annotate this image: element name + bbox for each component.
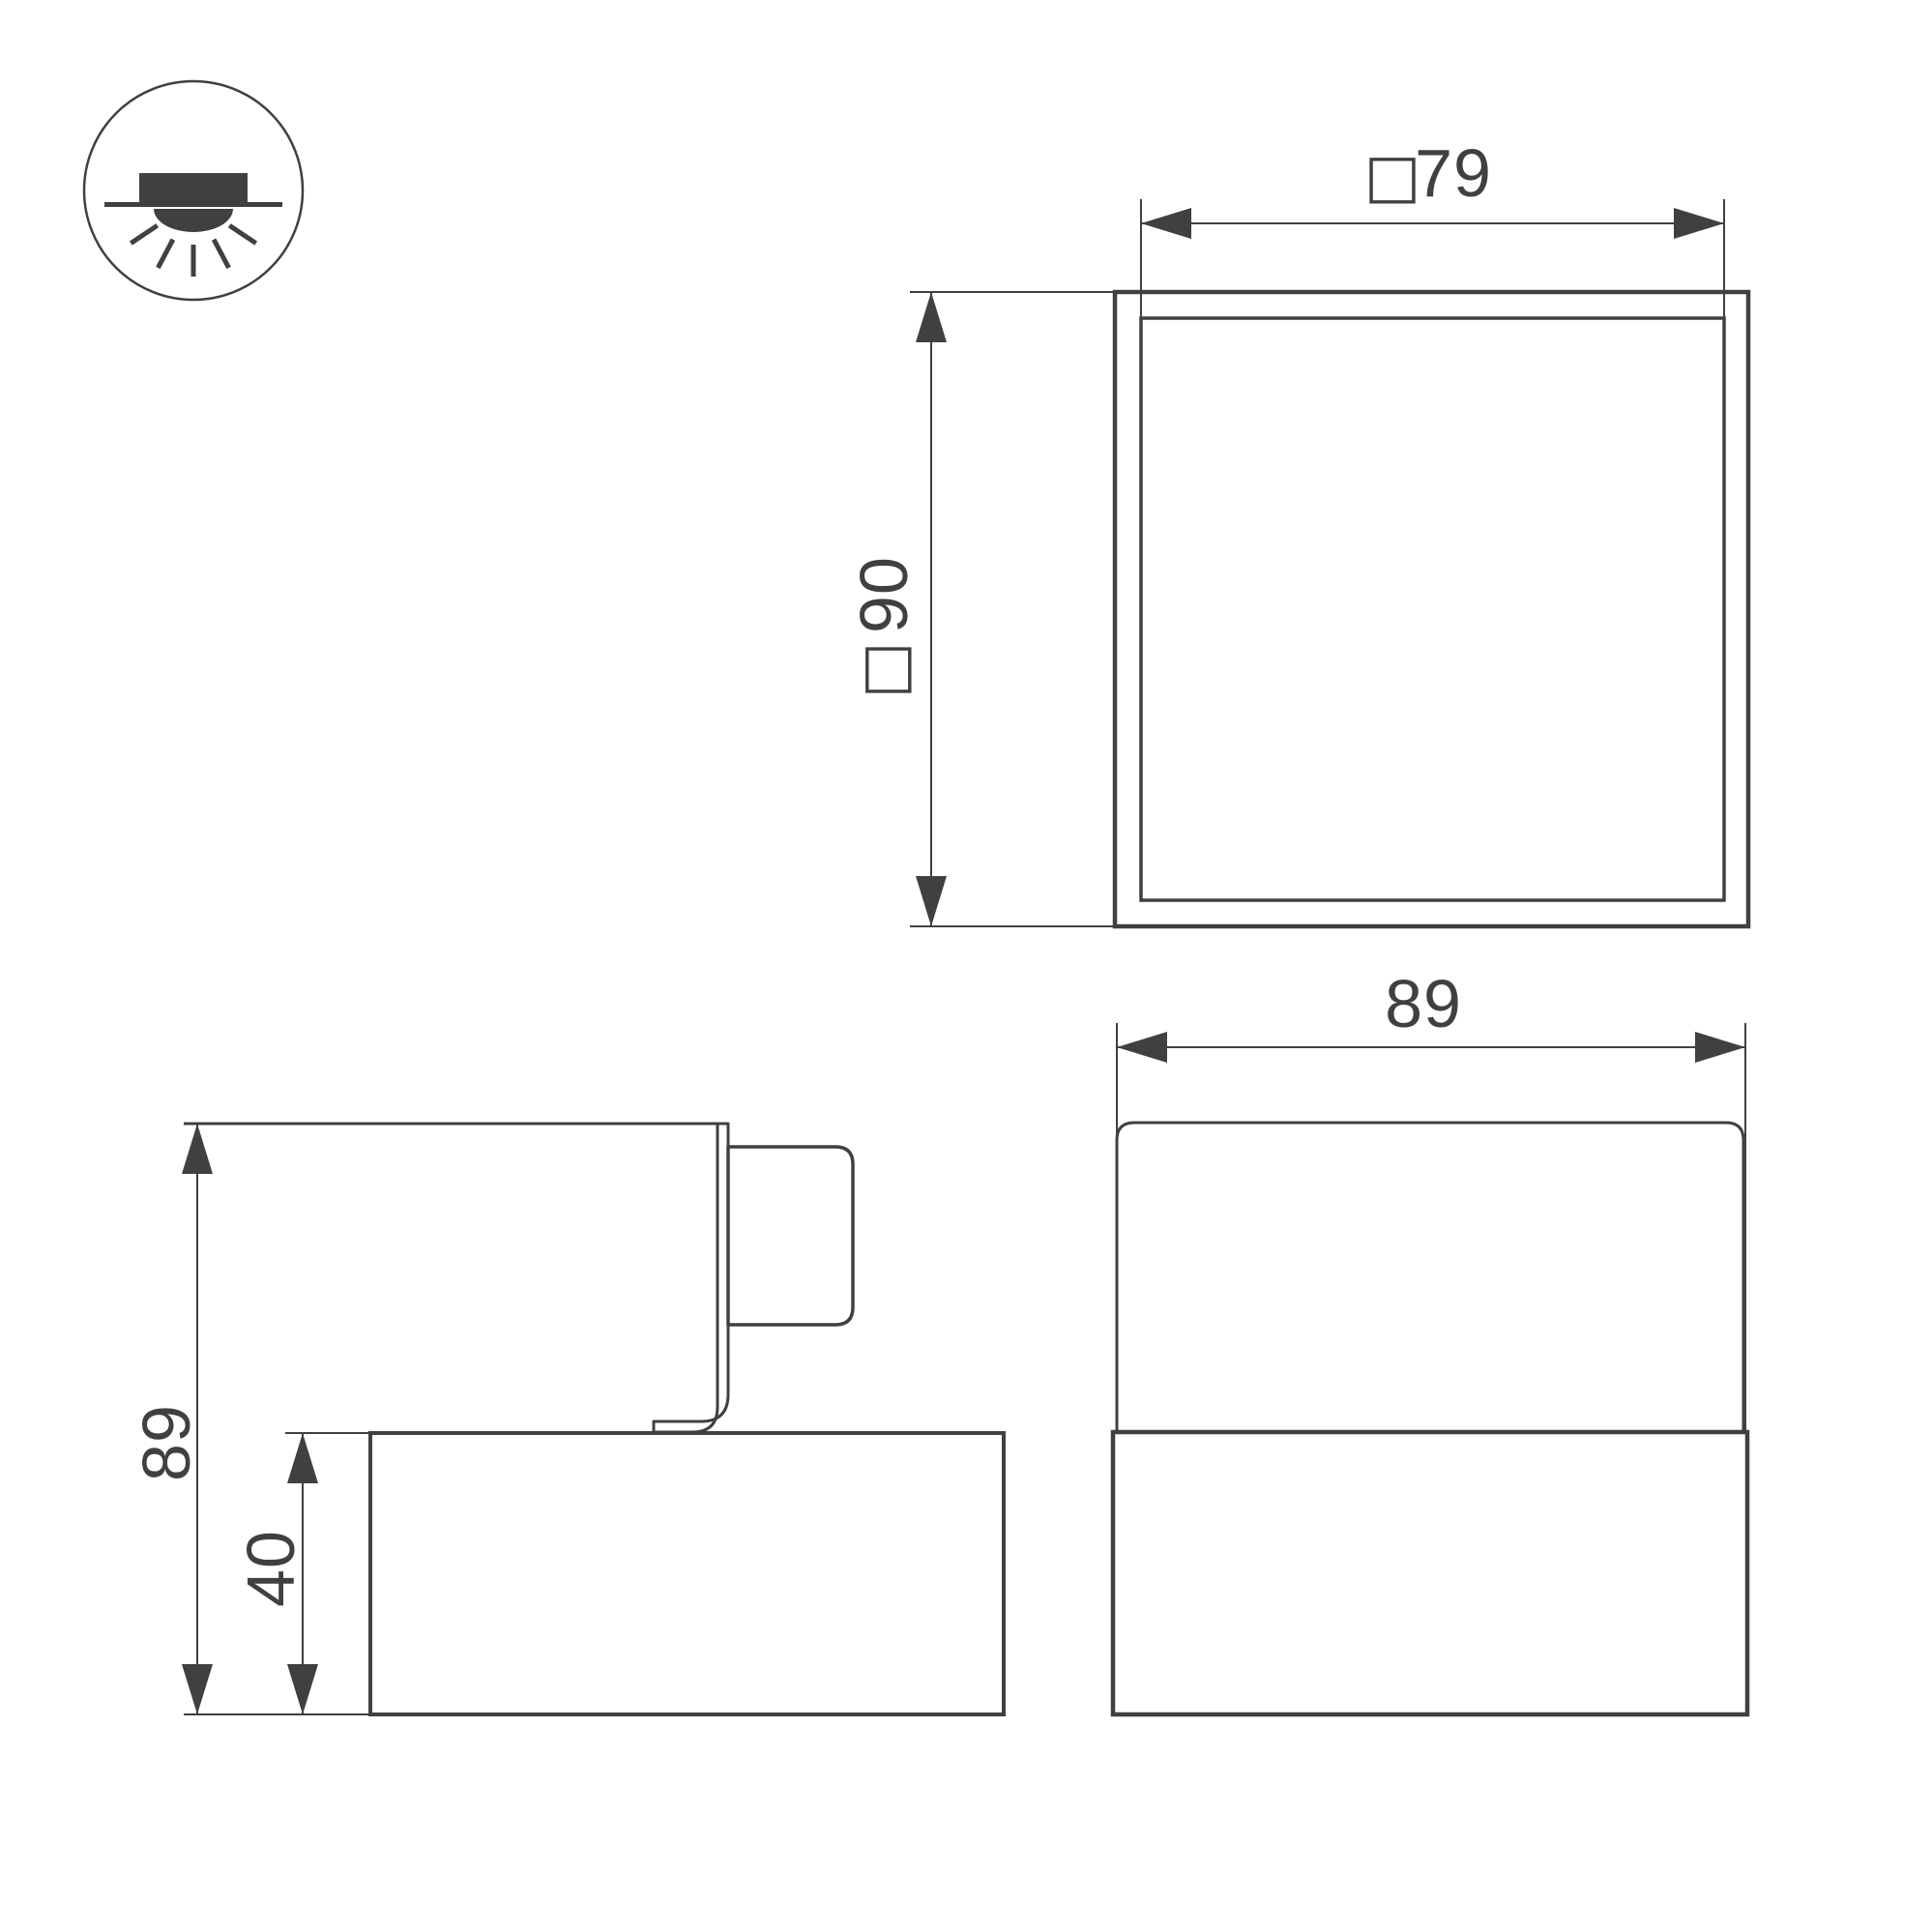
front-lamp-body bbox=[1117, 1123, 1743, 1432]
front-width-value: 89 bbox=[1385, 966, 1462, 1041]
ray-icon bbox=[214, 240, 229, 268]
ray-icon bbox=[131, 225, 157, 243]
ray-icon bbox=[229, 225, 255, 243]
plan-outer-frame bbox=[1115, 292, 1748, 926]
side-base-height-value: 40 bbox=[233, 1530, 308, 1607]
light-rays-icon bbox=[131, 225, 255, 277]
light-dome-icon bbox=[154, 209, 233, 232]
ceiling-line-icon bbox=[104, 202, 282, 207]
arrowhead-down-icon bbox=[916, 876, 947, 926]
downlight-type-icon bbox=[84, 81, 303, 300]
front-view: 89 bbox=[1113, 966, 1747, 1714]
arrowhead-right-icon bbox=[1674, 208, 1724, 239]
arrowhead-up-icon bbox=[182, 1124, 213, 1174]
square-dimension-symbol: □ bbox=[1364, 140, 1421, 211]
plan-inner-frame bbox=[1141, 318, 1724, 900]
side-total-height-value: 89 bbox=[129, 1404, 204, 1481]
driver-box bbox=[728, 1147, 853, 1325]
side-base-height-dimension: 40 bbox=[233, 1433, 370, 1714]
arrowhead-right-icon bbox=[1695, 1032, 1745, 1063]
dimension-drawing-page: □ 79 90 □ bbox=[0, 0, 1932, 1932]
arrowhead-left-icon bbox=[1141, 208, 1191, 239]
side-base-body bbox=[370, 1433, 1004, 1714]
square-dimension-symbol: □ bbox=[848, 642, 919, 699]
luminaire-dimension-drawing: □ 79 90 □ bbox=[0, 0, 1932, 1932]
arrowhead-up-icon bbox=[916, 292, 947, 342]
side-total-height-dimension: 89 bbox=[129, 1124, 370, 1714]
front-width-dimension: 89 bbox=[1117, 966, 1745, 1063]
ray-icon bbox=[158, 240, 173, 268]
plan-size-value: 90 bbox=[846, 556, 922, 633]
arrowhead-up-icon bbox=[287, 1433, 318, 1483]
plan-width-value: 79 bbox=[1415, 135, 1492, 211]
plan-height-dimension: 90 □ bbox=[846, 292, 1115, 926]
plan-view: □ 79 90 □ bbox=[846, 135, 1748, 926]
front-base-body bbox=[1113, 1432, 1747, 1714]
arrowhead-left-icon bbox=[1117, 1032, 1167, 1063]
arrowhead-down-icon bbox=[182, 1664, 213, 1714]
mounting-bracket bbox=[654, 1124, 728, 1432]
side-view: 89 40 bbox=[129, 1124, 1004, 1714]
fixture-body-icon bbox=[139, 173, 248, 204]
arrowhead-down-icon bbox=[287, 1664, 318, 1714]
